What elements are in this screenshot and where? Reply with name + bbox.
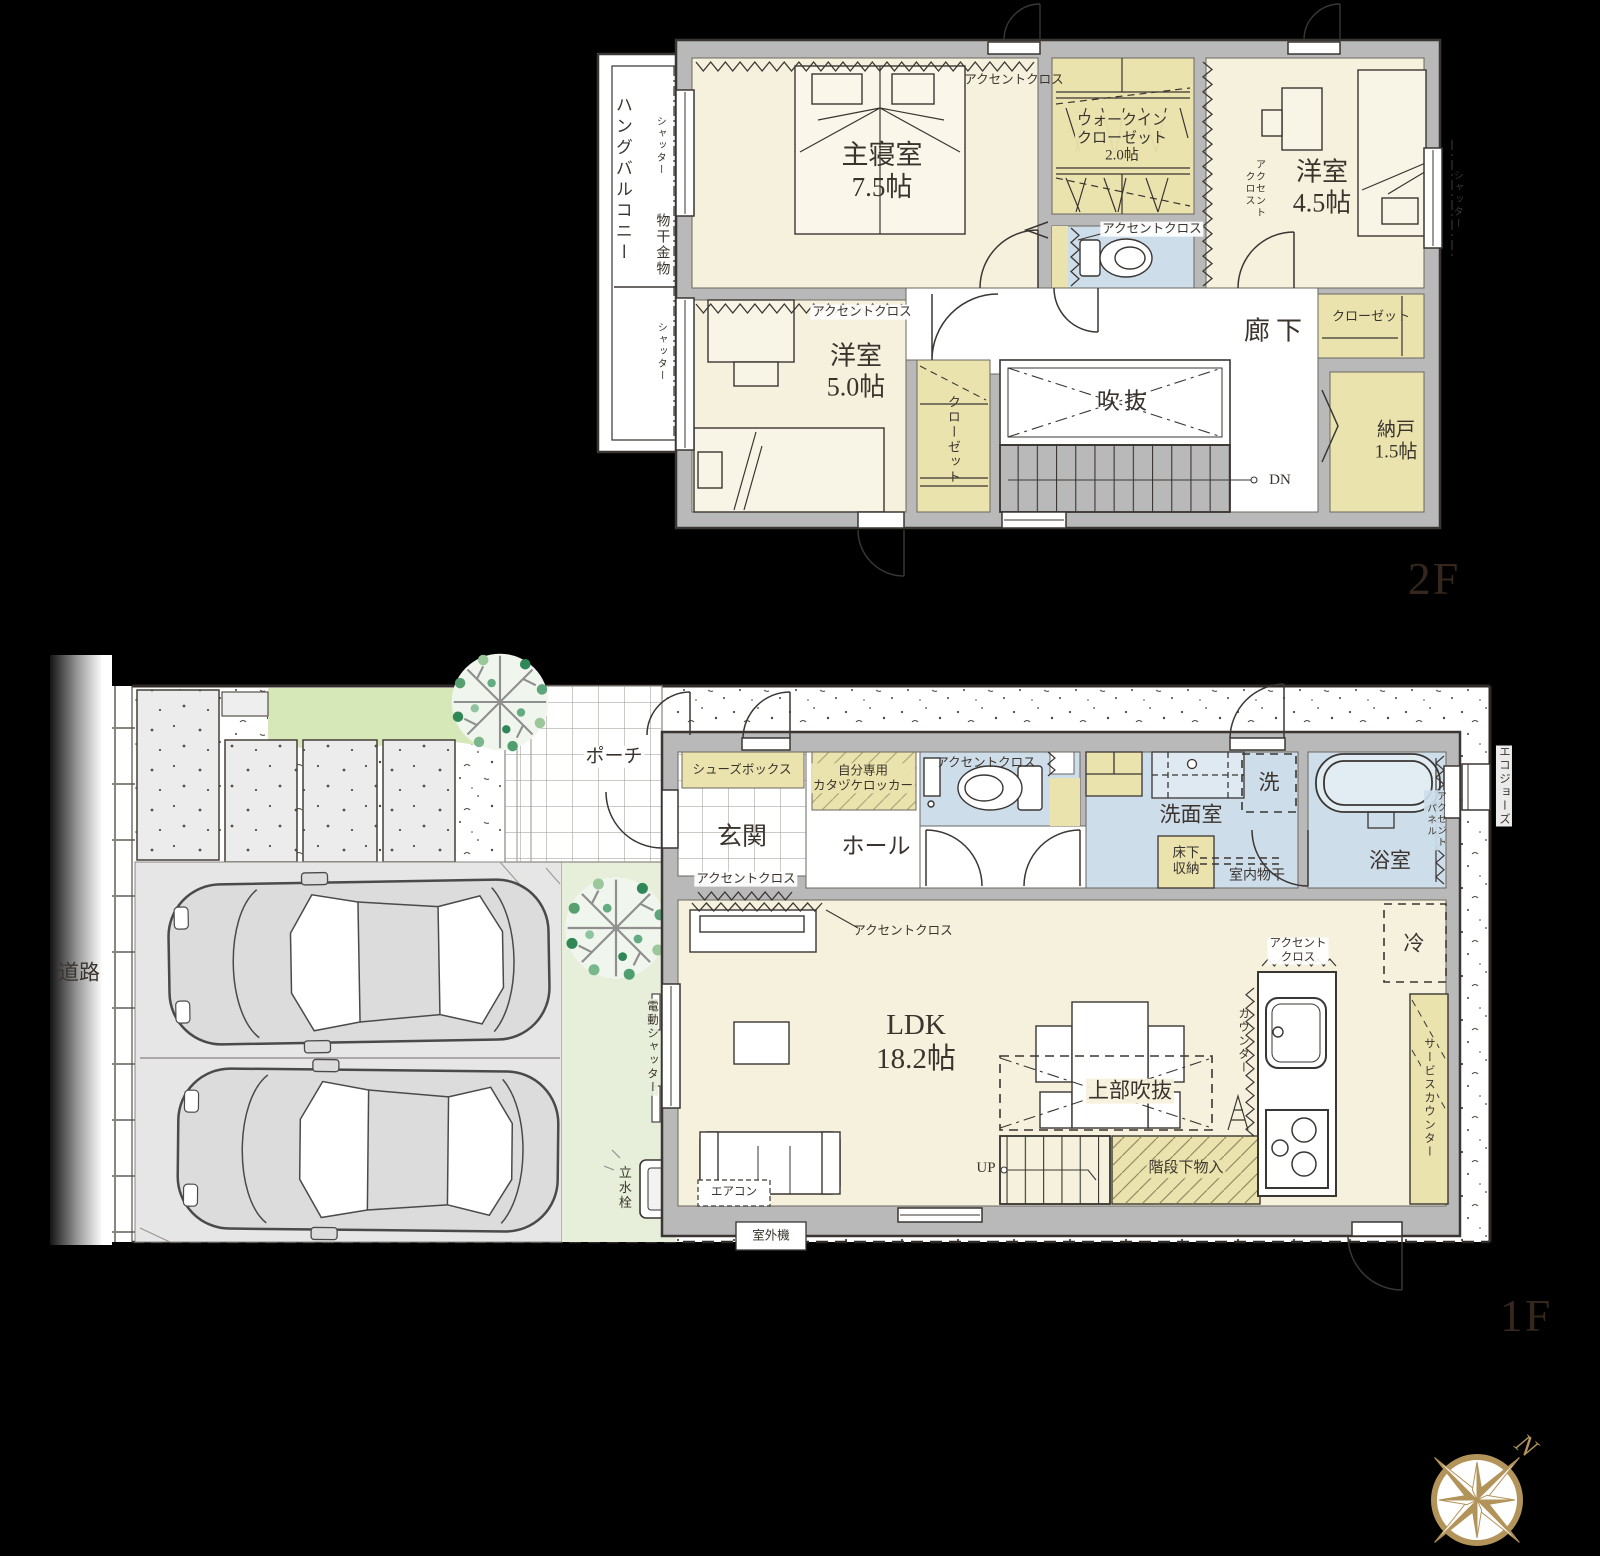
floorplan-canvas: ハングバルコニー シャッター 物干金物 シャッター アクセントクロス 主寝室 7… — [0, 0, 1600, 1556]
upper-void-label: 上部吹抜 — [1086, 1079, 1174, 1104]
accent-cloth-label: アクセントクロス — [810, 305, 913, 320]
room-label-bathroom: 浴室 — [1369, 849, 1411, 874]
accent-cloth-label: アクセント クロス — [1243, 159, 1264, 219]
accent-panel-label: アクセント パネル — [1424, 790, 1444, 850]
accent-cloth-label: アクセントクロス — [1100, 222, 1203, 237]
service-counter-label: サービスカウンター — [1421, 1037, 1437, 1159]
room-label-western-room-50: 洋室 5.0帖 — [827, 341, 886, 402]
accent-cloth-label: アクセントクロス — [853, 924, 952, 939]
counter-label: カウンター — [1237, 1007, 1249, 1075]
second-floor-plan — [598, 4, 1452, 576]
void-label: 吹抜 — [1097, 387, 1151, 414]
room-label-storeroom: 納戸 1.5帖 — [1375, 420, 1418, 465]
room-label-entrance: 玄関 — [717, 822, 767, 852]
stairs-down-label: DN — [1269, 472, 1291, 490]
air-conditioner-label: エアコン — [711, 1186, 757, 1200]
personal-locker-label: 自分専用 カタヅケロッカー — [811, 763, 915, 793]
floor-label-1f: 1F — [1500, 1289, 1553, 1343]
outdoor-unit-label: 室外機 — [752, 1229, 790, 1244]
indoor-drying-label: 室内物干 — [1229, 869, 1285, 886]
eco-jozu-label: エコジョーズ — [1496, 746, 1512, 827]
accent-cloth-label: アクセントクロス — [694, 872, 797, 887]
washer-label: 洗 — [1259, 771, 1280, 796]
shutter-label: シャッター — [1451, 170, 1462, 230]
laundry-hardware-label: 物干金物 — [654, 213, 669, 277]
closet-label: クローゼット — [946, 395, 960, 485]
water-tap-label: 立水栓 — [617, 1165, 631, 1212]
shutter-label: シャッター — [655, 322, 666, 382]
floor-label-2f: 2F — [1408, 552, 1461, 606]
stairs-up-label: UP — [976, 1160, 995, 1178]
room-label-master-bedroom: 主寝室 7.5帖 — [842, 140, 923, 204]
accent-cloth-label: アクセントクロス — [964, 73, 1063, 88]
shutter-label: シャッター — [654, 116, 665, 176]
floorplan-graphic — [0, 0, 1600, 1556]
balcony-label: ハングバルコニー — [613, 96, 631, 264]
accent-cloth-label: アクセントクロス — [936, 756, 1035, 771]
underfloor-storage-label: 床下 収納 — [1173, 845, 1200, 877]
closet-label: クローゼット — [1332, 308, 1410, 323]
fridge-label: 冷 — [1404, 932, 1425, 957]
room-label-ldk: LDK 18.2帖 — [876, 1008, 956, 1076]
room-label-western-room-45: 洋室 4.5帖 — [1293, 157, 1352, 218]
room-label-walk-in-closet: ウォークイン クローゼット 2.0帖 — [1075, 112, 1169, 165]
room-label-porch: ポーチ — [583, 746, 644, 768]
accent-cloth-label: アクセント クロス — [1268, 937, 1329, 964]
road-label: 道路 — [58, 961, 100, 986]
room-label-hallway: 廊下 — [1244, 317, 1308, 348]
room-label-washroom: 洗面室 — [1160, 803, 1223, 828]
room-label-hall: ホール — [842, 832, 911, 859]
shoe-box-label: シューズボックス — [692, 763, 791, 778]
compass-rose — [1434, 1457, 1520, 1543]
electric-shutter-label: 電動シャッター — [646, 999, 658, 1096]
under-stairs-storage-label: 階段下物入 — [1146, 1160, 1225, 1178]
